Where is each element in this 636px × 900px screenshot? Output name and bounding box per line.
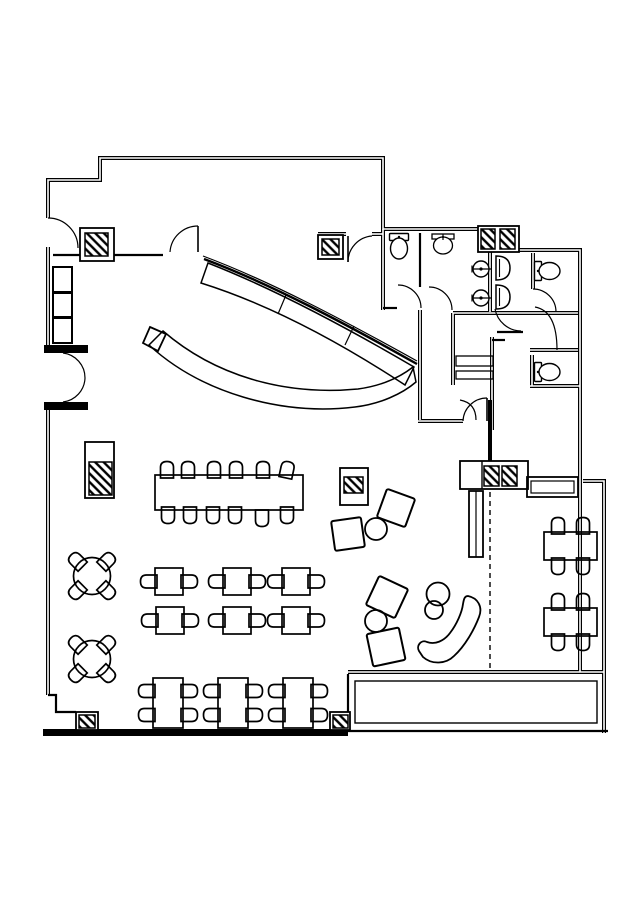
column-hatched — [85, 442, 114, 498]
column-hatched — [460, 461, 528, 489]
toilet — [390, 234, 409, 260]
column-hatch — [333, 715, 348, 728]
column-hatch — [484, 466, 499, 486]
toilet — [535, 262, 561, 281]
column-hatch — [481, 229, 495, 249]
column-hatched — [318, 235, 343, 259]
column-hatched — [330, 712, 350, 730]
column-hatched — [76, 712, 98, 730]
column-hatch — [322, 239, 339, 255]
column-hatch — [89, 462, 112, 495]
wall-solid — [44, 345, 88, 353]
floor-plan-image — [0, 0, 636, 900]
urinal — [496, 256, 510, 280]
urinal — [496, 285, 510, 309]
column-hatched — [478, 226, 519, 252]
column-hatch — [502, 466, 517, 486]
sink — [432, 234, 454, 254]
column-hatch — [500, 229, 515, 249]
wall-solid — [44, 402, 88, 410]
column-hatched — [340, 468, 368, 505]
wall-solid — [488, 400, 492, 462]
toilet — [535, 363, 561, 382]
floor-plan-canvas — [0, 0, 636, 900]
column-hatch — [85, 233, 108, 256]
column-hatch — [79, 715, 95, 728]
column-hatched — [80, 228, 114, 261]
column-hatch — [344, 477, 363, 493]
